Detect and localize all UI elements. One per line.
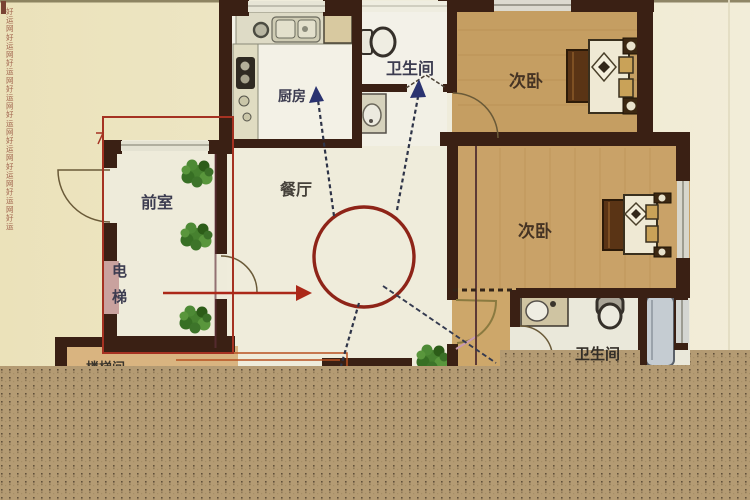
svg-text:电: 电: [112, 262, 127, 280]
svg-text:次卧: 次卧: [518, 221, 552, 241]
svg-text:厨房: 厨房: [278, 88, 306, 104]
svg-text:前室: 前室: [141, 193, 173, 212]
svg-text:次卧: 次卧: [509, 71, 543, 91]
svg-text:好运网好运网好运网好运网好运网好运网好运网好运网好运: 好运网好运网好运网好运网好运网好运网好运网好运网好运: [6, 6, 14, 231]
svg-text:餐厅: 餐厅: [279, 180, 312, 199]
svg-text:梯: 梯: [112, 288, 127, 306]
svg-text:卫生间: 卫生间: [575, 345, 620, 363]
svg-text:卫生间: 卫生间: [386, 59, 434, 78]
